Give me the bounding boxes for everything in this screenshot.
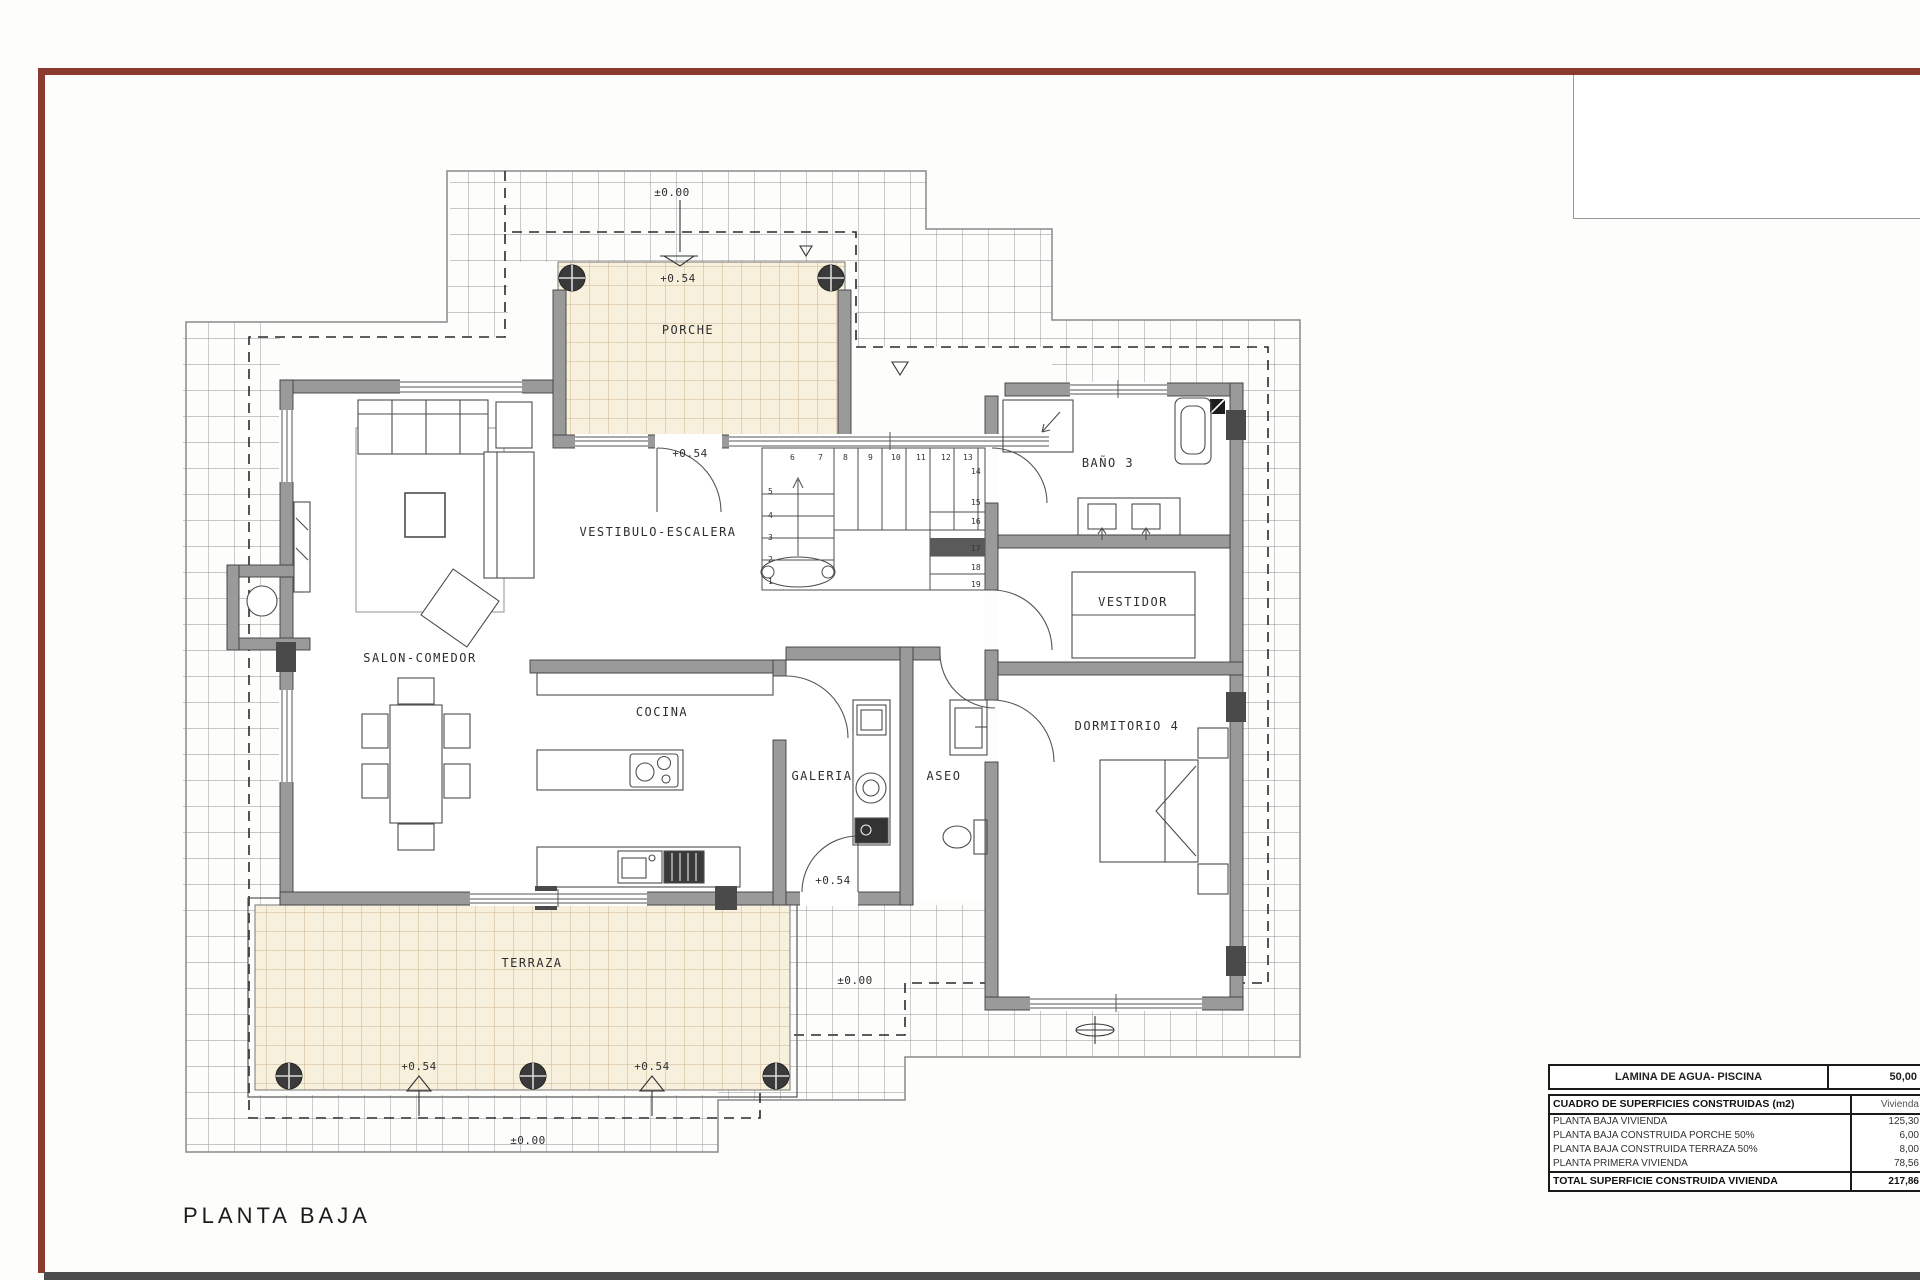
- dish-rack: [664, 851, 704, 883]
- level-label: +0.54: [401, 1060, 437, 1073]
- svg-text:5: 5: [768, 487, 773, 496]
- porch-column: [559, 265, 585, 291]
- level-label: ±0.00: [510, 1134, 546, 1147]
- level-label: ±0.00: [654, 186, 690, 199]
- svg-text:2: 2: [768, 555, 773, 564]
- surfaces-header-value: Vivienda: [1852, 1096, 1920, 1113]
- level-label: +0.54: [815, 874, 851, 887]
- level-label: +0.54: [634, 1060, 670, 1073]
- room-label-porche: PORCHE: [662, 323, 714, 337]
- bay-feature: [247, 586, 277, 616]
- room-label-salon: SALON-COMEDOR: [363, 651, 476, 665]
- level-label: ±0.00: [837, 974, 873, 987]
- porche-area: [558, 262, 845, 437]
- drawing-sheet: 1 2 3 4 5 6 7 8 9 10 11 12 13 14 15 16 1…: [0, 0, 1920, 1280]
- surfaces-total-row: TOTAL SUPERFICIE CONSTRUIDA VIVIENDA 217…: [1550, 1171, 1920, 1190]
- svg-text:17: 17: [971, 544, 981, 553]
- level-label: +0.54: [672, 447, 708, 460]
- room-label-cocina: COCINA: [636, 705, 688, 719]
- piscina-label: LAMINA DE AGUA- PISCINA: [1550, 1066, 1829, 1088]
- surfaces-table: CUADRO DE SUPERFICIES CONSTRUIDAS (m2) V…: [1548, 1094, 1920, 1192]
- svg-text:13: 13: [963, 453, 973, 462]
- terraza-column: [763, 1063, 789, 1089]
- svg-text:12: 12: [941, 453, 951, 462]
- piscina-table: LAMINA DE AGUA- PISCINA 50,00: [1548, 1064, 1920, 1090]
- plan-title: PLANTA BAJA: [183, 1203, 371, 1229]
- svg-text:6: 6: [790, 453, 795, 462]
- corner-marks: [1210, 399, 1225, 414]
- terraza-column: [520, 1063, 546, 1089]
- room-label-vestibulo: VESTIBULO-ESCALERA: [579, 525, 736, 539]
- svg-text:18: 18: [971, 563, 981, 572]
- table-row: PLANTA BAJA CONSTRUIDA PORCHE 50% 6,00: [1550, 1129, 1920, 1143]
- svg-text:10: 10: [891, 453, 901, 462]
- porch-column: [818, 265, 844, 291]
- svg-text:15: 15: [971, 498, 981, 507]
- surfaces-header-label: CUADRO DE SUPERFICIES CONSTRUIDAS (m2): [1550, 1096, 1852, 1113]
- svg-text:19: 19: [971, 580, 981, 589]
- chaise: [484, 452, 534, 578]
- svg-text:4: 4: [768, 511, 773, 520]
- svg-text:1: 1: [768, 577, 773, 586]
- table-row: PLANTA PRIMERA VIVIENDA 78,56: [1550, 1157, 1920, 1171]
- svg-text:14: 14: [971, 467, 981, 476]
- svg-text:8: 8: [843, 453, 848, 462]
- table-row: PLANTA BAJA CONSTRUIDA TERRAZA 50% 8,00: [1550, 1143, 1920, 1157]
- sofa: [358, 400, 488, 454]
- room-label-bano3: BAÑO 3: [1082, 455, 1134, 470]
- dining-table: [390, 705, 442, 823]
- table-row: PLANTA BAJA VIVIENDA 125,30: [1550, 1115, 1920, 1129]
- svg-text:3: 3: [768, 533, 773, 542]
- svg-text:9: 9: [868, 453, 873, 462]
- room-label-dormitorio4: DORMITORIO 4: [1075, 719, 1180, 733]
- room-label-aseo: ASEO: [927, 769, 962, 783]
- room-label-vestidor: VESTIDOR: [1098, 595, 1168, 609]
- terraza-area: [248, 898, 797, 1097]
- fireplace: [294, 502, 310, 592]
- level-label: +0.54: [660, 272, 696, 285]
- piscina-value: 50,00: [1829, 1066, 1920, 1088]
- room-label-terraza: TERRAZA: [501, 956, 562, 970]
- terraza-column: [276, 1063, 302, 1089]
- svg-text:16: 16: [971, 517, 981, 526]
- coffee-table: [405, 493, 445, 537]
- svg-text:11: 11: [916, 453, 926, 462]
- room-label-galeria: GALERIA: [791, 769, 852, 783]
- armchair: [496, 402, 532, 448]
- surfaces-header-row: CUADRO DE SUPERFICIES CONSTRUIDAS (m2) V…: [1550, 1096, 1920, 1115]
- svg-text:7: 7: [818, 453, 823, 462]
